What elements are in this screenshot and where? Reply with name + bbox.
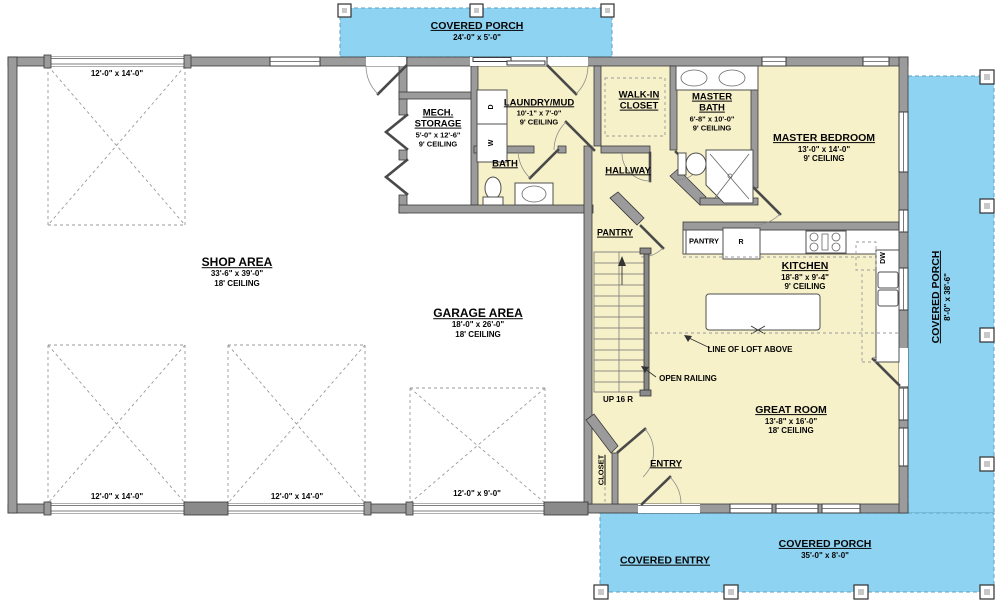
window — [899, 112, 908, 172]
room-label-shop: SHOP AREA33'-6" x 39'-0"18' CEILING — [202, 255, 273, 289]
porch-bottom-label: COVERED PORCH35'-0" x 8'-0" — [779, 538, 872, 560]
window — [822, 504, 860, 513]
laundry-fixtures — [477, 90, 507, 162]
window — [899, 268, 908, 310]
room-label-master-bath: MASTER BATH6'-8" x 10'-0"9' CEILING — [683, 92, 741, 133]
bath-sink-icon — [515, 183, 553, 205]
room-label-great-room: GREAT ROOM13'-8" x 16'-0"18' CEILING — [755, 404, 827, 436]
room-label-entry: ENTRY — [650, 458, 682, 469]
window — [762, 57, 786, 66]
garage-door-label: 12'-0" x 14'-0" — [271, 492, 323, 502]
porch-top-label: COVERED PORCH24'-0" x 5'-0" — [431, 20, 524, 42]
room-label-garage: GARAGE AREA18'-0" x 26'-0"18' CEILING — [433, 306, 523, 340]
room-label-pantry-kitchen: PANTRY — [689, 237, 719, 246]
porch-right-label: COVERED PORCH8'-0" x 38'-6" — [930, 251, 952, 344]
room-label-laundry: LAUNDRY/MUD10'-1" x 7'-0"9' CEILING — [504, 97, 574, 126]
garage-door-label: 12'-0" x 14'-0" — [91, 492, 143, 502]
window — [270, 57, 320, 66]
window — [899, 388, 908, 420]
floor-plan: COVERED PORCH24'-0" x 5'-0" COVERED PORC… — [0, 0, 1000, 614]
window — [899, 428, 908, 466]
dryer-label: D — [488, 104, 496, 109]
room-label-mech-storage: MECH. STORAGE5'-0" x 12'-6"9' CEILING — [410, 108, 466, 149]
window — [899, 210, 908, 232]
room-label-hallway: HALLWAY — [605, 165, 651, 176]
room-label-pantry-hall: PANTRY — [597, 228, 633, 239]
window — [776, 504, 818, 513]
open-railing-label: OPEN RAILING — [659, 374, 717, 384]
garage-door-label: 12'-0" x 14'-0" — [91, 69, 143, 79]
room-label-walk-in-closet: WALK-IN CLOSET — [610, 90, 668, 113]
room-label-bath: BATH — [492, 158, 518, 169]
toilet-icon — [678, 153, 706, 175]
washer-label: W — [488, 140, 496, 147]
kitchen-island — [706, 294, 820, 330]
window — [863, 57, 889, 66]
vanity-counter — [676, 66, 758, 90]
stairs-label: UP 16 R — [603, 395, 633, 405]
window — [730, 504, 772, 513]
garage-door-label: 12'-0" x 9'-0" — [453, 489, 501, 499]
dishwasher-label: DW — [880, 252, 888, 264]
room-label-closet: CLOSET — [597, 455, 606, 485]
room-label-kitchen: KITCHEN18'-8" x 9'-4"9' CEILING — [781, 260, 829, 292]
refrigerator-label: R — [738, 239, 743, 247]
loft-line-label: LINE OF LOFT ABOVE — [707, 345, 792, 355]
sliding-door — [470, 57, 546, 66]
room-label-master-bedroom: MASTER BEDROOM13'-0" x 14'-0"9' CEILING — [773, 132, 875, 164]
covered-entry-label: COVERED ENTRY — [620, 555, 710, 568]
range-cooktop — [806, 231, 846, 253]
